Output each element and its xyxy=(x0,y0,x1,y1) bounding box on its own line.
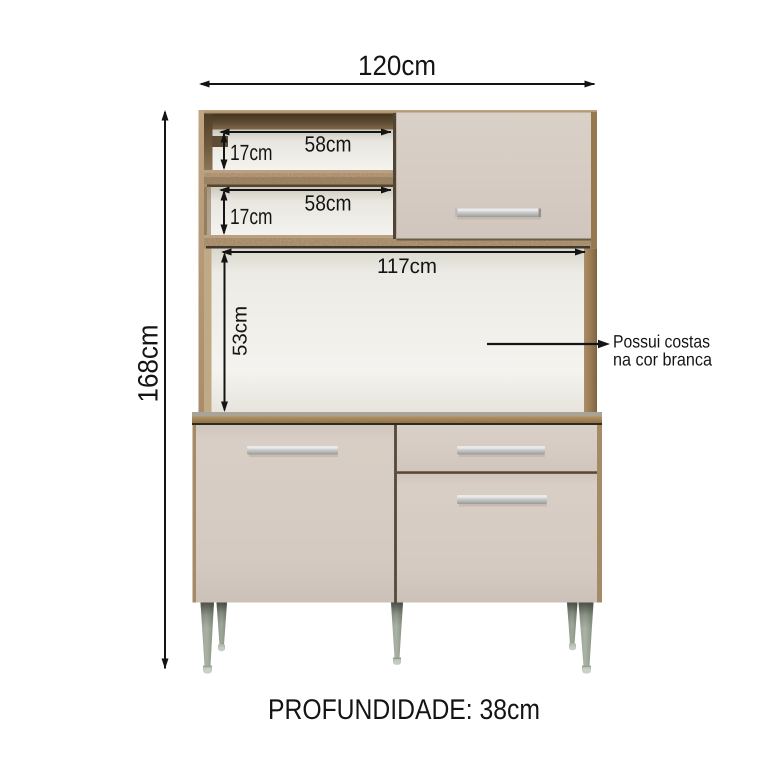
svg-text:na cor branca: na cor branca xyxy=(613,350,713,370)
svg-text:58cm: 58cm xyxy=(305,132,352,157)
svg-text:Possui costas: Possui costas xyxy=(613,332,710,352)
svg-text:168cm: 168cm xyxy=(133,325,164,403)
svg-text:120cm: 120cm xyxy=(358,50,436,81)
svg-text:53cm: 53cm xyxy=(230,306,252,356)
svg-text:PROFUNDIDADE: 38cm: PROFUNDIDADE: 38cm xyxy=(268,694,540,726)
svg-text:17cm: 17cm xyxy=(230,140,273,165)
svg-text:17cm: 17cm xyxy=(230,204,273,229)
svg-text:117cm: 117cm xyxy=(377,255,437,278)
svg-text:58cm: 58cm xyxy=(305,191,352,216)
